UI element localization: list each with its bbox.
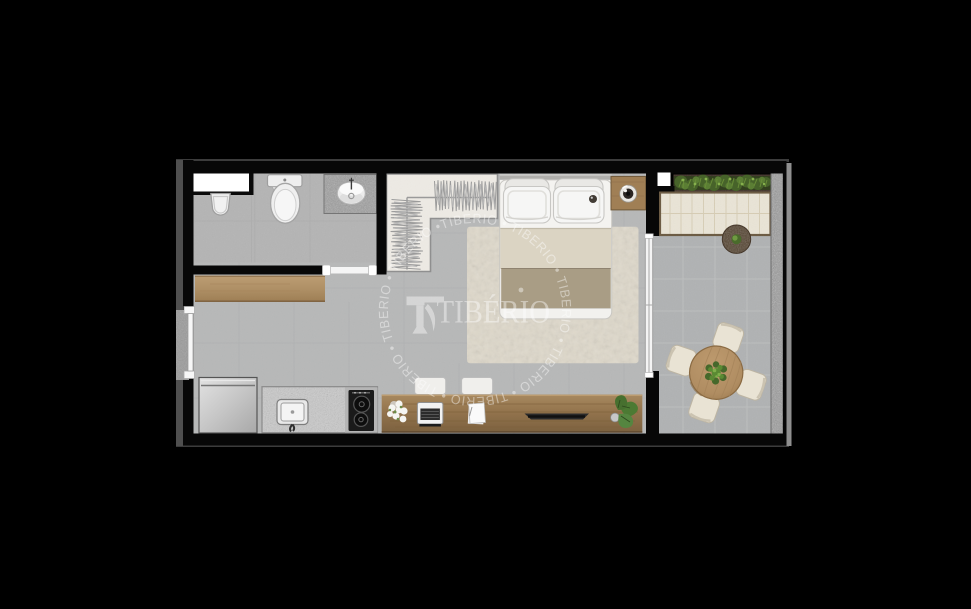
svg-text:TIBÉRIO: TIBÉRIO <box>437 294 551 331</box>
